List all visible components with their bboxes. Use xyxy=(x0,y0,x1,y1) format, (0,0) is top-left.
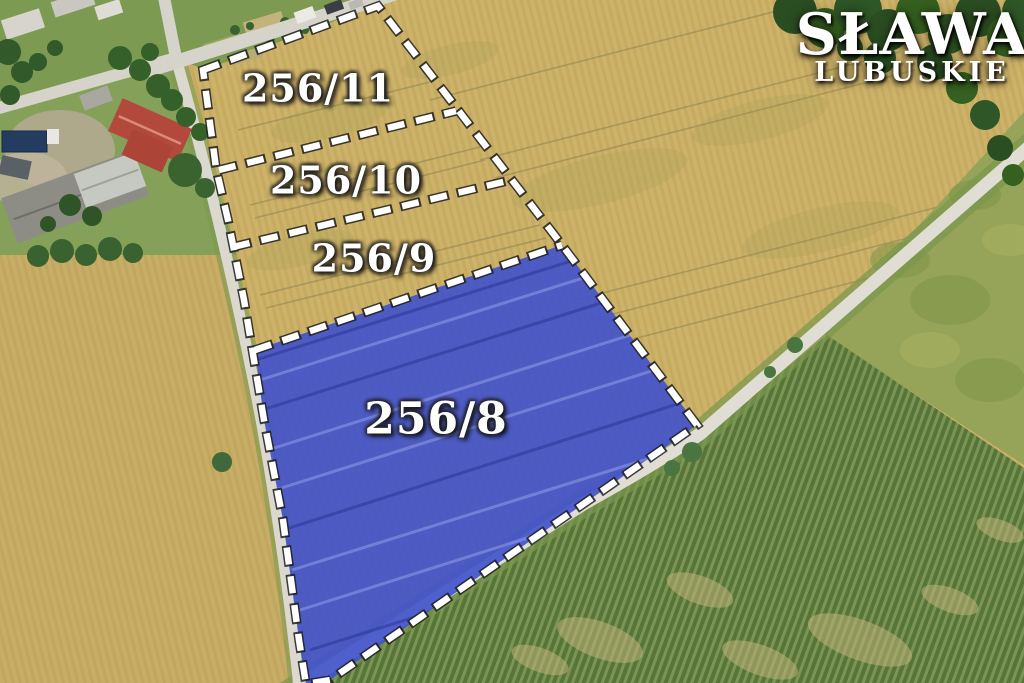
parcel-label-256-9: 256/9 xyxy=(312,236,437,281)
parcel-label-256-8: 256/8 xyxy=(364,394,508,445)
scene xyxy=(0,0,1024,683)
aerial-photo: 256/11 256/10 256/9 256/8 SŁAWA LUBUSKIE xyxy=(0,0,1024,683)
watermark: SŁAWA LUBUSKIE xyxy=(796,10,1024,86)
parcel-label-256-10: 256/10 xyxy=(270,158,422,203)
watermark-town: SŁAWA xyxy=(796,10,1024,60)
watermark-region: LUBUSKIE xyxy=(796,60,1024,86)
parcel-label-256-11: 256/11 xyxy=(242,66,394,111)
roadside-bush xyxy=(212,452,232,472)
